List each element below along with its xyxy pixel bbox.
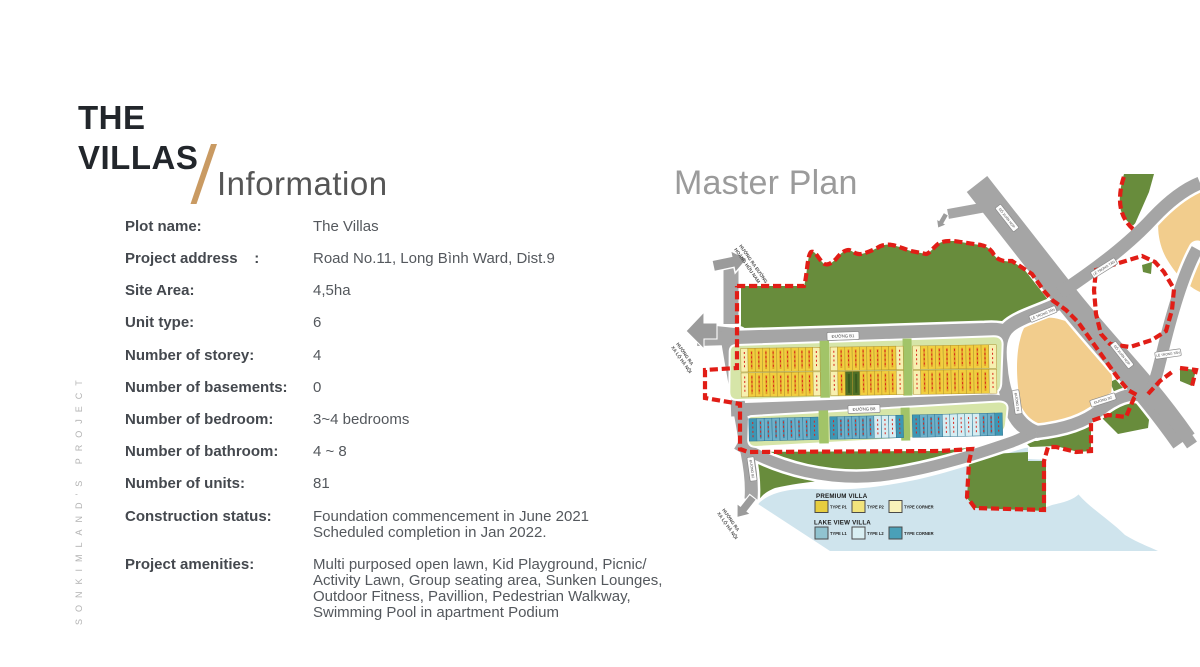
svg-text:PREMIUM VILLA: PREMIUM VILLA [816,493,868,500]
svg-text:LAKE VIEW VILLA: LAKE VIEW VILLA [814,520,871,527]
svg-text:TYPE CORNER: TYPE CORNER [904,531,934,536]
svg-text:ĐƯỜNG B1: ĐƯỜNG B1 [832,333,856,339]
svg-text:TYPE L1: TYPE L1 [830,531,847,536]
svg-text:TYPE P2: TYPE P2 [867,505,885,510]
svg-text:TYPE P1: TYPE P1 [830,505,848,510]
svg-text:TYPE L2: TYPE L2 [867,531,884,536]
svg-text:ĐƯỜNG B8: ĐƯỜNG B8 [853,406,877,412]
svg-text:TYPE CORNER: TYPE CORNER [904,505,934,510]
